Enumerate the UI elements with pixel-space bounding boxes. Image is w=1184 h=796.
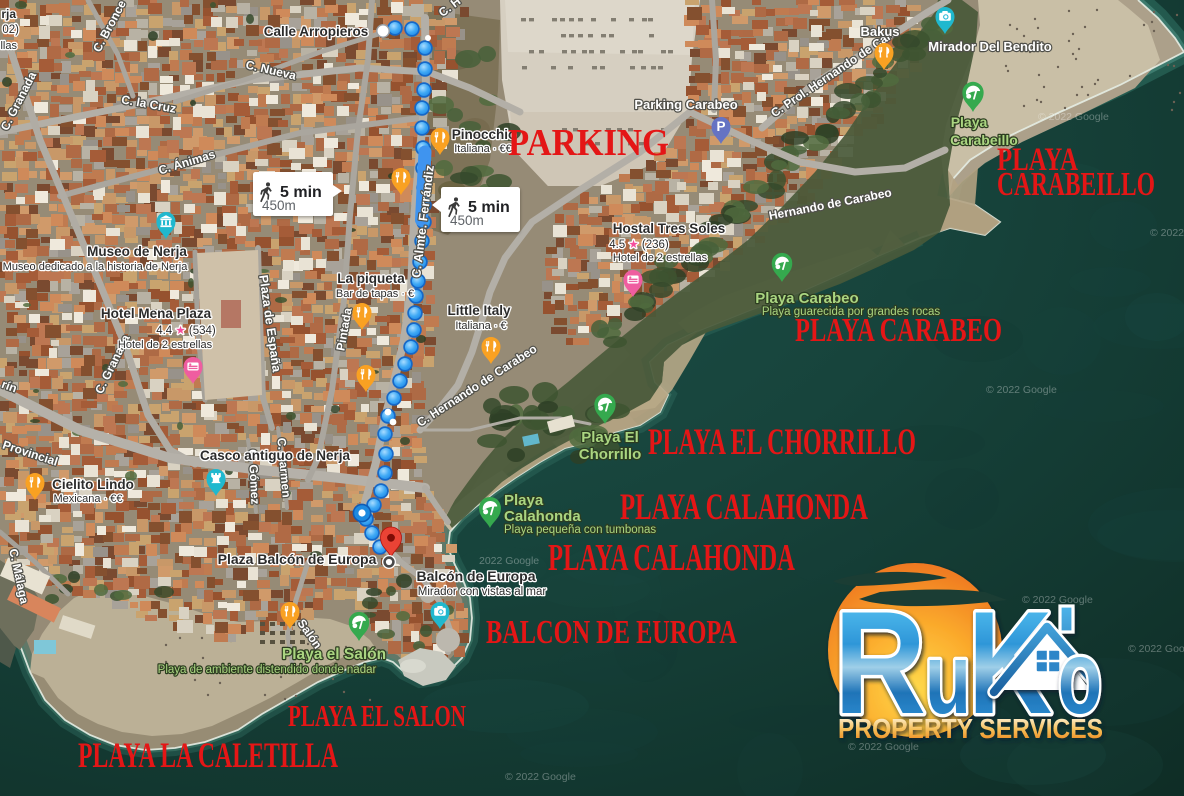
svg-text:PLAYA LA CALETILLA: PLAYA LA CALETILLA [78, 735, 338, 775]
svg-text:450m: 450m [262, 198, 296, 213]
svg-text:© 2022 Goo: © 2022 Goo [1128, 643, 1184, 655]
svg-text:Pinocchio: Pinocchio [452, 127, 517, 142]
svg-text:Italiana · €: Italiana · € [455, 320, 506, 332]
svg-text:Mirador Del Bendito: Mirador Del Bendito [928, 39, 1052, 54]
svg-text:Playa el Salón: Playa el Salón [282, 646, 386, 663]
svg-text:Little Italy: Little Italy [447, 303, 511, 318]
svg-text:450m: 450m [450, 213, 484, 228]
svg-text:4.4 ★ (534): 4.4 ★ (534) [156, 325, 216, 337]
svg-text:Hostal Tres Soles: Hostal Tres Soles [613, 221, 726, 236]
svg-text:Plaza Balcón de Europa: Plaza Balcón de Europa [218, 551, 377, 567]
svg-text:Museo de Nerja: Museo de Nerja [87, 244, 187, 259]
svg-text:Museo dedicado a la historia d: Museo dedicado a la historia de Nerja [3, 261, 189, 273]
svg-text:Balcón de Europa: Balcón de Europa [416, 568, 535, 584]
svg-text:PLAYA CALAHONDA: PLAYA CALAHONDA [620, 487, 868, 528]
svg-text:BALCON DE EUROPA: BALCON DE EUROPA [486, 614, 737, 651]
svg-text:Casco antiguo de Nerja: Casco antiguo de Nerja [200, 448, 351, 463]
svg-text:© 2022 Google: © 2022 Google [1038, 111, 1109, 123]
svg-text:P: P [716, 119, 725, 134]
svg-text:Playa El: Playa El [581, 429, 639, 446]
svg-text:4.5 ★ (236): 4.5 ★ (236) [609, 239, 669, 251]
svg-text:Playa: Playa [951, 114, 988, 130]
svg-text:Mirador con vistas al mar: Mirador con vistas al mar [418, 586, 547, 598]
svg-text:Hotel de 2 estrellas: Hotel de 2 estrellas [613, 252, 708, 264]
svg-text:PLAYA CALAHONDA: PLAYA CALAHONDA [548, 537, 795, 579]
svg-text:© 2022: © 2022 [1150, 227, 1184, 239]
svg-text:Bar de tapas · €: Bar de tapas · € [336, 288, 414, 300]
svg-text:PLAYA CARABEO: PLAYA CARABEO [795, 312, 1002, 349]
svg-text:Hotel Mena Plaza: Hotel Mena Plaza [101, 306, 212, 321]
svg-text:llas: llas [0, 40, 17, 52]
svg-text:Chorrillo: Chorrillo [579, 446, 642, 463]
svg-text:rja: rja [1, 7, 16, 21]
svg-text:Mexicana · €€: Mexicana · €€ [53, 493, 122, 505]
svg-text:Calle Arropieros: Calle Arropieros [264, 24, 369, 39]
svg-text:© 2022 Google: © 2022 Google [986, 384, 1057, 396]
svg-text:Hotel de 2 estrellas: Hotel de 2 estrellas [118, 339, 213, 351]
svg-text:2022 Google: 2022 Google [479, 555, 539, 567]
svg-text:PLAYA EL CHORRILLO: PLAYA EL CHORRILLO [648, 422, 916, 463]
svg-text:Playa de ambiente distendido d: Playa de ambiente distendido donde nadar [158, 664, 377, 676]
svg-text:PROPERTY SERVICES: PROPERTY SERVICES [838, 713, 1103, 744]
svg-text:Bakus: Bakus [860, 24, 899, 39]
svg-text:Italiana · €€: Italiana · €€ [454, 143, 511, 155]
svg-text:Cielito Lindo: Cielito Lindo [52, 477, 134, 492]
svg-text:02): 02) [2, 24, 19, 36]
svg-text:Playa: Playa [504, 492, 544, 509]
svg-text:La piqueta: La piqueta [337, 271, 405, 286]
svg-text:PARKING: PARKING [508, 122, 669, 164]
svg-text:© 2022 Google: © 2022 Google [505, 771, 576, 783]
svg-text:Parking Carabeo: Parking Carabeo [634, 97, 737, 112]
svg-text:PLAYA EL SALON: PLAYA EL SALON [288, 698, 466, 733]
svg-text:CARABEILLO: CARABEILLO [997, 166, 1155, 203]
svg-text:Playa Carabeo: Playa Carabeo [755, 290, 858, 307]
svg-text:Calahonda: Calahonda [504, 508, 581, 525]
